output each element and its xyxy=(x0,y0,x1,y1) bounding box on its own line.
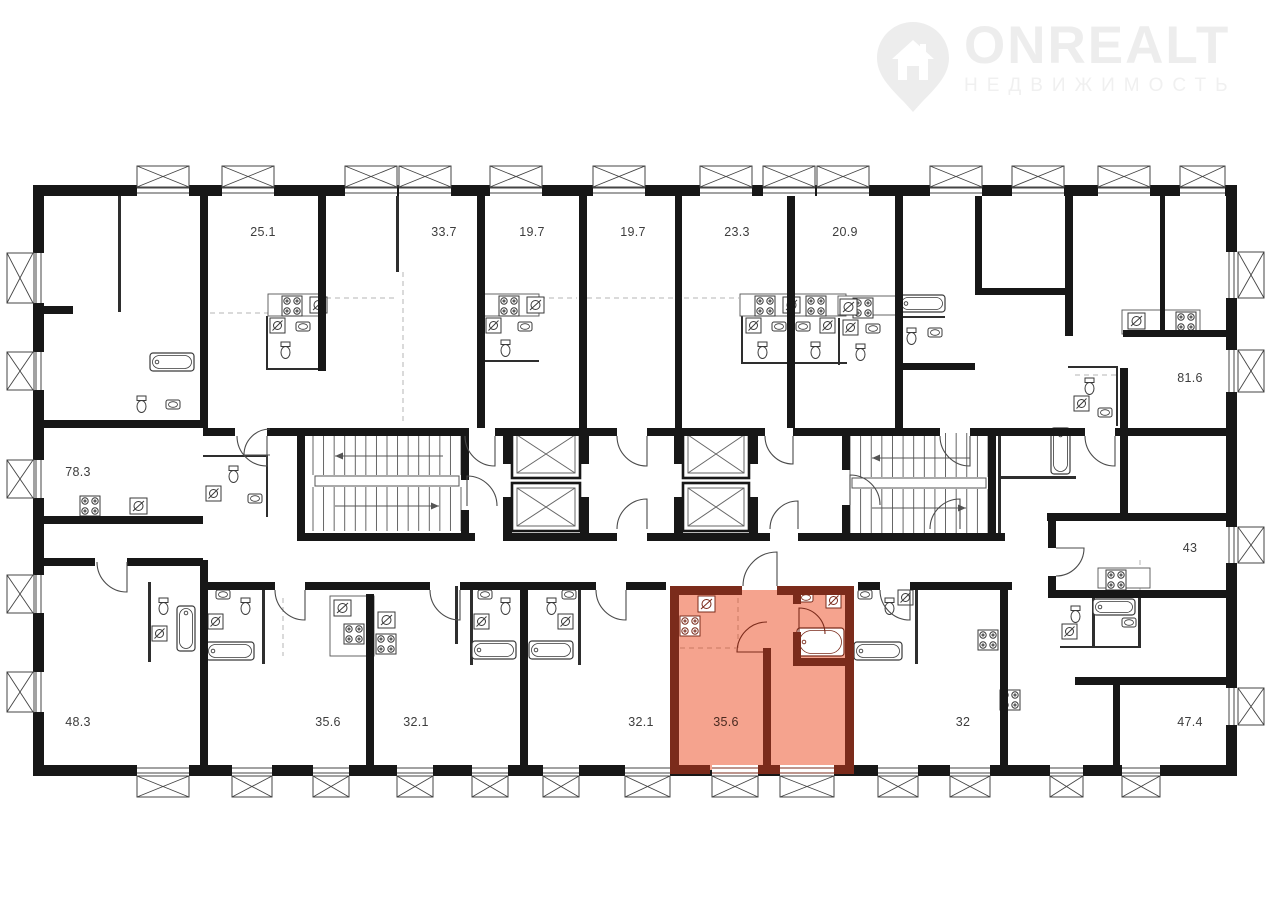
washbasin-icon xyxy=(562,590,576,599)
washbasin-icon xyxy=(296,322,310,331)
highlighted-unit xyxy=(670,586,854,797)
room-area-label: 33.7 xyxy=(431,225,457,239)
door-arc xyxy=(770,501,798,529)
room-area-label: 32.1 xyxy=(403,715,429,729)
toilet-icon xyxy=(811,342,820,359)
window-icon xyxy=(1180,166,1225,196)
washbasin-icon xyxy=(216,590,230,599)
washing-machine-icon xyxy=(843,320,858,335)
highlighted-room-area-label: 35.6 xyxy=(713,715,739,729)
window-icon xyxy=(1226,252,1264,298)
window-icon xyxy=(1226,527,1264,563)
washing-machine-icon xyxy=(898,590,913,605)
room-area-label: 19.7 xyxy=(519,225,545,239)
door-arc xyxy=(617,436,647,466)
bathtub-icon xyxy=(206,642,254,660)
sink-icon xyxy=(840,299,857,315)
toilet-icon xyxy=(501,598,510,615)
window-icon xyxy=(137,765,189,797)
washing-machine-icon xyxy=(486,318,501,333)
stove-icon xyxy=(680,616,700,636)
window-icon xyxy=(930,166,982,196)
door-arc xyxy=(765,436,793,464)
toilet-icon xyxy=(241,598,250,615)
window-icon xyxy=(490,166,542,196)
window-icon xyxy=(543,765,579,797)
window-icon xyxy=(137,166,189,196)
window-icon xyxy=(878,765,918,797)
room-area-label: 35.6 xyxy=(315,715,341,729)
bathtub-icon xyxy=(177,606,195,651)
washbasin-icon xyxy=(928,328,942,337)
stove-icon xyxy=(499,296,519,316)
floorplan-image: 25.1 33.7 19.7 19.7 23.3 20.9 81.6 78.3 … xyxy=(0,0,1270,910)
window-icon xyxy=(1012,166,1064,196)
sink-icon xyxy=(1128,313,1145,329)
window-icon xyxy=(1226,688,1264,725)
door-arc xyxy=(275,590,305,620)
window-icon xyxy=(313,765,349,797)
washbasin-icon xyxy=(858,590,872,599)
room-area-label: 20.9 xyxy=(832,225,858,239)
window-icon xyxy=(7,253,44,303)
bathtub-icon xyxy=(472,641,516,659)
window-icon xyxy=(397,765,433,797)
stove-icon xyxy=(1106,570,1126,590)
bathtub-icon xyxy=(899,295,945,312)
walls xyxy=(33,185,1237,776)
window-icon xyxy=(7,460,44,498)
washbasin-icon xyxy=(796,322,810,331)
toilet-icon xyxy=(137,396,146,413)
room-area-label: 19.7 xyxy=(620,225,646,239)
door-arc xyxy=(465,436,495,466)
stove-icon xyxy=(978,630,998,650)
fixtures xyxy=(80,295,1196,710)
toilet-icon xyxy=(758,342,767,359)
washing-machine-icon xyxy=(152,626,167,641)
stove-icon xyxy=(376,634,396,654)
door-arc xyxy=(617,499,647,529)
window-icon xyxy=(1098,166,1150,196)
window-icon xyxy=(950,765,990,797)
toilet-icon xyxy=(856,344,865,361)
stove-icon xyxy=(80,496,100,516)
windows xyxy=(7,166,1264,797)
toilet-icon xyxy=(281,342,290,359)
bathtub-icon xyxy=(1093,599,1135,615)
room-area-label: 78.3 xyxy=(65,465,91,479)
door-arc xyxy=(97,562,127,592)
room-area-label: 43 xyxy=(1183,541,1198,555)
stove-icon xyxy=(755,296,775,316)
bathtub-icon xyxy=(854,642,902,660)
window-icon xyxy=(7,575,44,613)
toilet-icon xyxy=(547,598,556,615)
washing-machine-icon xyxy=(1062,624,1077,639)
toilet-icon xyxy=(501,340,510,357)
door-arc xyxy=(1056,548,1084,576)
window-icon xyxy=(700,166,752,196)
washbasin-icon xyxy=(166,400,180,409)
window-icon xyxy=(593,166,645,196)
bathtub-icon xyxy=(150,353,194,371)
window-icon xyxy=(1050,765,1083,797)
washbasin-icon xyxy=(866,324,880,333)
elevator-shaft xyxy=(512,483,580,531)
room-area-label: 23.3 xyxy=(724,225,750,239)
room-area-label: 25.1 xyxy=(250,225,276,239)
room-area-label: 32.1 xyxy=(628,715,654,729)
sink-icon xyxy=(378,612,395,628)
window-icon xyxy=(712,765,758,797)
washing-machine-icon xyxy=(206,486,221,501)
elevator-shaft xyxy=(512,430,580,478)
window-icon xyxy=(7,672,44,712)
sink-icon xyxy=(527,297,544,313)
toilet-icon xyxy=(1085,378,1094,395)
sink-icon xyxy=(130,498,147,514)
window-icon xyxy=(763,166,815,196)
door-arc xyxy=(940,436,970,466)
room-area-label: 81.6 xyxy=(1177,371,1203,385)
toilet-icon xyxy=(1071,606,1080,623)
washing-machine-icon xyxy=(558,614,573,629)
staircase xyxy=(313,431,461,531)
room-area-label: 48.3 xyxy=(65,715,91,729)
washing-machine-icon xyxy=(208,614,223,629)
stove-icon xyxy=(344,624,364,644)
washing-machine-icon xyxy=(746,318,761,333)
window-icon xyxy=(232,765,272,797)
window-icon xyxy=(222,166,274,196)
door-arc xyxy=(743,552,777,586)
washbasin-icon xyxy=(772,322,786,331)
elevator-shaft xyxy=(683,430,749,478)
washing-machine-icon xyxy=(826,593,841,608)
stove-icon xyxy=(1176,312,1196,332)
door-arc xyxy=(244,429,270,455)
door-arc xyxy=(237,436,267,466)
elevator-shaft xyxy=(683,483,749,531)
stove-icon xyxy=(282,296,302,316)
sink-icon xyxy=(698,596,715,612)
door-arc xyxy=(596,590,626,620)
washbasin-icon xyxy=(248,494,262,503)
washbasin-icon xyxy=(518,322,532,331)
washing-machine-icon xyxy=(1074,396,1089,411)
bathtub-icon xyxy=(797,628,844,656)
door-arc xyxy=(1085,436,1115,466)
room-area-label: 32 xyxy=(956,715,971,729)
washing-machine-icon xyxy=(820,318,835,333)
window-icon xyxy=(625,765,670,797)
toilet-icon xyxy=(907,328,916,345)
toilet-icon xyxy=(159,598,168,615)
stove-icon xyxy=(806,296,826,316)
window-icon xyxy=(1226,350,1264,392)
floorplan-svg xyxy=(0,0,1270,910)
window-icon xyxy=(399,166,451,196)
washing-machine-icon xyxy=(474,614,489,629)
window-icon xyxy=(345,166,397,196)
washbasin-icon xyxy=(1098,408,1112,417)
door-arc xyxy=(467,476,497,506)
window-icon xyxy=(817,166,869,196)
window-icon xyxy=(472,765,508,797)
window-icon xyxy=(1122,765,1160,797)
window-icon xyxy=(780,765,834,797)
bathtub-icon xyxy=(529,641,573,659)
washbasin-icon xyxy=(478,590,492,599)
sink-icon xyxy=(334,600,351,616)
washbasin-icon xyxy=(1122,618,1136,627)
washing-machine-icon xyxy=(270,318,285,333)
window-icon xyxy=(7,352,44,390)
toilet-icon xyxy=(229,466,238,483)
room-area-label: 47.4 xyxy=(1177,715,1203,729)
